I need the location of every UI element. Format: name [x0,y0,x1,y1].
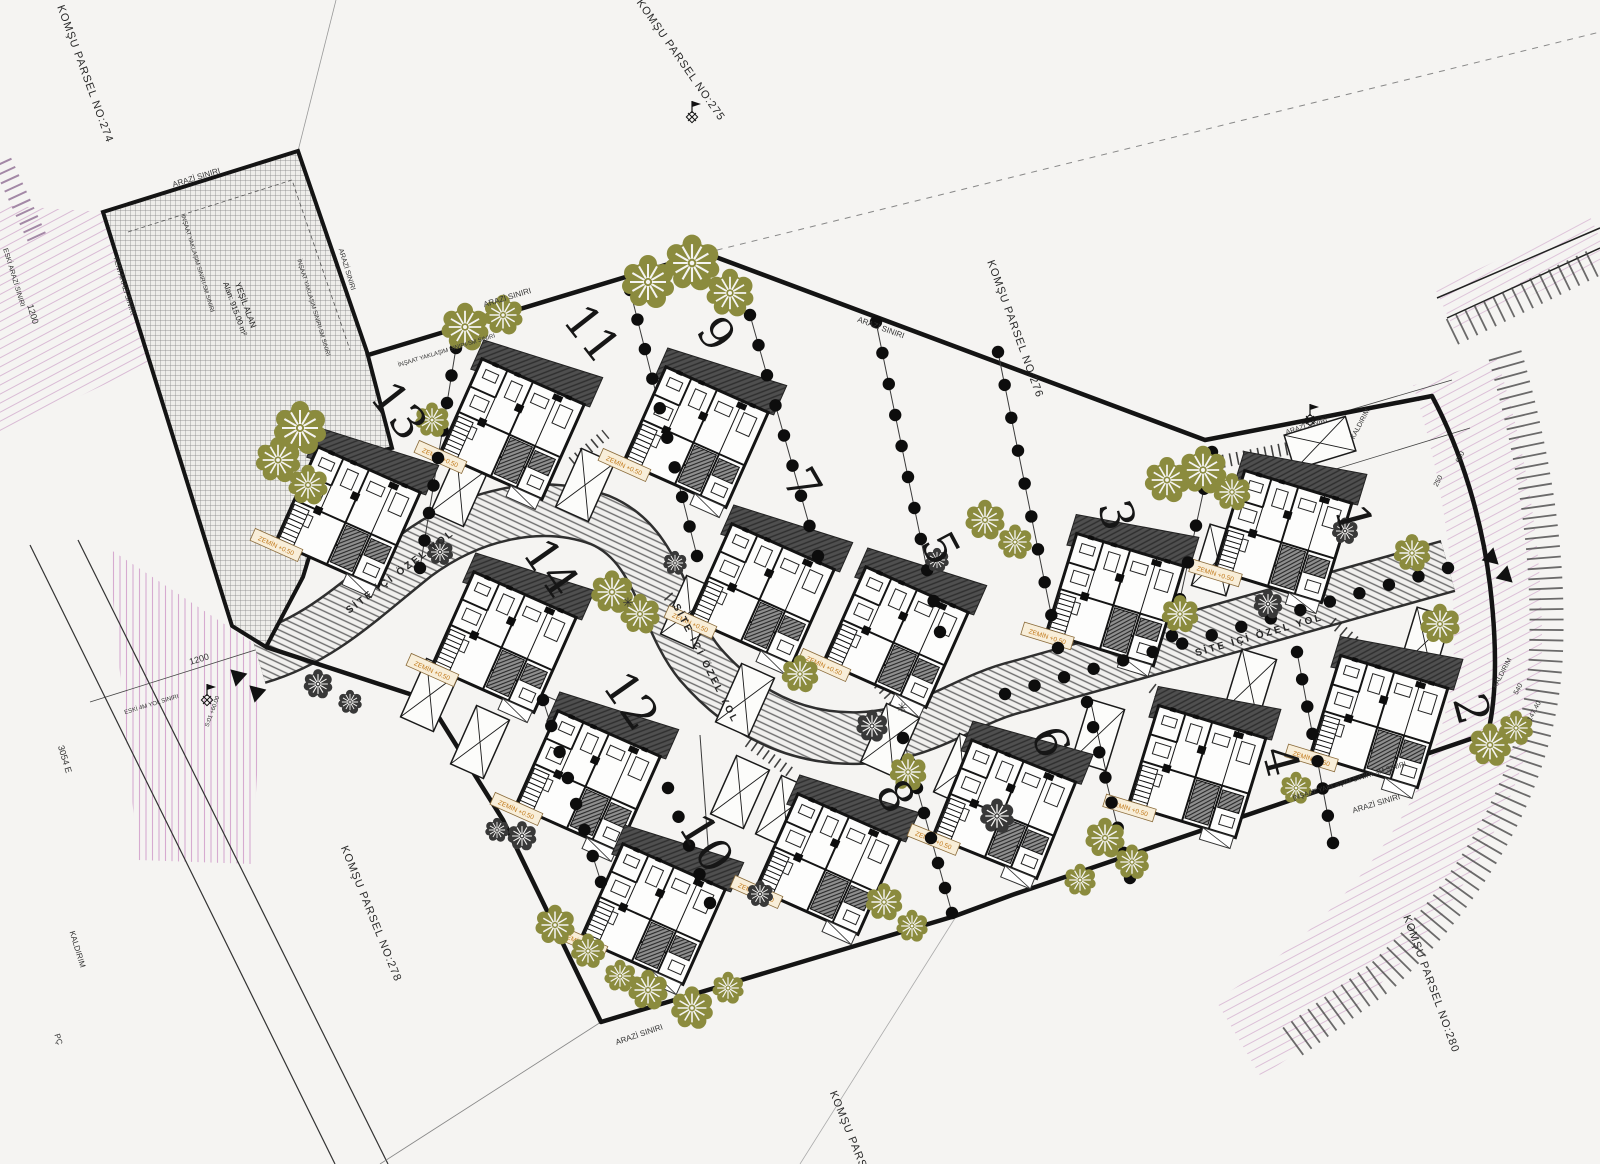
hedge-dot [537,694,549,706]
hedge-dot [587,850,599,862]
hedge-dot [676,491,688,503]
hedge-dot [578,824,590,836]
hedge-dot [902,471,914,483]
hedge-dot [1306,728,1318,740]
hedge-dot [1012,444,1024,456]
hedge-dot [999,688,1011,700]
carport [451,705,510,778]
hedge-dot [1296,673,1308,685]
hedge-dot [889,409,901,421]
hedge-dot [939,882,951,894]
hedge-dot [441,397,453,409]
annotation-text: KALDIRIM [68,930,88,969]
hedge-dot [1166,630,1178,642]
parcel-label: KOMŞU PARSEL NO:275 [634,0,727,123]
dark-tree-icon [304,669,333,698]
hedge-dot [445,369,457,381]
olive-tree-icon [896,910,927,942]
olive-tree-icon [604,960,635,992]
hedge-dot [932,857,944,869]
olive-tree-icon [966,500,1005,540]
site-plan-canvas: ZEMİN +0.50ZEMİN +0.50ZEMİN +0.50ZEMİN +… [0,0,1600,1164]
olive-tree-icon [998,524,1032,558]
hedge-dot [1105,796,1117,808]
annotation-text: ARAZİ SINIRI [1351,792,1401,815]
hedge-dot [908,502,920,514]
hedge-dot [1032,543,1044,555]
hedge-dot [1087,721,1099,733]
hedge-dot [1442,562,1454,574]
annotation-text: ✳ [623,595,634,610]
hedge-dot [1412,570,1424,582]
hedge-dot [1038,576,1050,588]
hedge-dot [803,520,815,532]
hedge-dot [432,452,444,464]
hedge-dot [883,378,895,390]
carport-x-icon [451,705,510,778]
plot-number: 11 [553,294,632,373]
hedge-dot [1045,609,1057,621]
hedge-dot [761,369,773,381]
hedge-dot [918,807,930,819]
hedge-dot [1117,654,1129,666]
hedge-dot [1353,587,1365,599]
hedge-dot [691,550,703,562]
hedge-dot [1081,696,1093,708]
dark-tree-icon [338,690,361,714]
hedge-dot [1018,477,1030,489]
hedge-dot [1190,519,1202,531]
hedge-dot [646,372,658,384]
hedge-dot [992,346,1004,358]
hedge-dot [812,550,824,562]
hedge-dot [1005,412,1017,424]
annotation-text: ✳ [897,700,908,715]
hedge-dot [927,595,939,607]
annotation-text: 3054 E [56,744,74,774]
villa-floorplan-icon [613,335,786,521]
hedge-dot [1099,771,1111,783]
hedge-dot [1235,621,1247,633]
hedge-dot [562,772,574,784]
hedge-dot [631,313,643,325]
hedge-dot [545,720,557,732]
plot-divider-line [998,352,1058,648]
parcel-label: KOMŞU PARSEL NO:276 [984,259,1045,400]
hedge-dot [1301,700,1313,712]
hedge-dot [744,309,756,321]
hedge-dot [639,343,651,355]
hedge-dot [654,402,666,414]
annotation-text: ARAZİ SINIRI [614,1022,664,1047]
hedge-dot [595,876,607,888]
hedge-dot [668,461,680,473]
hedge-dot [1322,810,1334,822]
hedge-dot [934,626,946,638]
hedge-dot [1291,646,1303,658]
hedge-dot [1025,510,1037,522]
hedge-dot [895,440,907,452]
hedge-dot [778,429,790,441]
house-plan: ZEMİN +0.50 [597,328,787,521]
hedge-dot [683,520,695,532]
hedge-dot [423,507,435,519]
hedge-dot [662,782,674,794]
parcel-label: KOMŞU PARSEL [827,1089,875,1164]
hedge-dot [672,811,684,823]
hedge-dot [925,832,937,844]
hedge-dot [427,479,439,491]
hedge-dot [1146,646,1158,658]
parcel-label: KOMŞU PARSEL NO:280 [1400,914,1461,1055]
hedge-dot [1028,679,1040,691]
hedge-dot [998,379,1010,391]
hedge-dot [1182,556,1194,568]
parcel-label: KOMŞU PARSEL NO:274 [54,4,115,145]
hedge-dot [1052,642,1064,654]
hedge-dot [1294,604,1306,616]
olive-tree-icon [712,972,743,1004]
hedge-dot [1311,755,1323,767]
hedge-dot [704,897,716,909]
hedge-dot [570,798,582,810]
dark-tree-icon [508,821,537,850]
hedge-dot [1324,595,1336,607]
survey-marker-icon [686,101,701,123]
site-plan-drawing: ZEMİN +0.50ZEMİN +0.50ZEMİN +0.50ZEMİN +… [0,0,1600,1164]
hedge-dot [1176,637,1188,649]
hedge-dot [553,746,565,758]
hedge-dot [1206,629,1218,641]
hedge-dot [769,399,781,411]
hedge-dot [1383,579,1395,591]
hedge-dot [1087,663,1099,675]
hedge-dot [897,732,909,744]
hedge-dot [661,432,673,444]
hedge-dot [1058,671,1070,683]
hedge-dot [752,339,764,351]
hedge-dot [876,347,888,359]
hedge-dot [1327,837,1339,849]
hedge-dot [946,907,958,919]
annotation-text: PÇ [52,1033,64,1046]
parcel-label: KOMŞU PARSEL NO:278 [338,844,404,983]
hedge-dot [1093,746,1105,758]
